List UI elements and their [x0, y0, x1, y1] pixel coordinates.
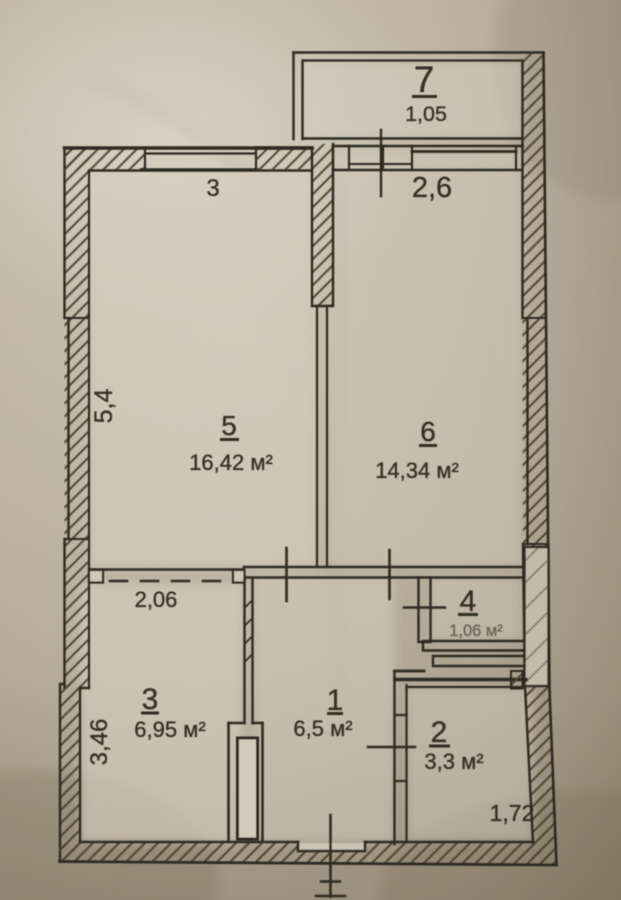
- svg-text:2,6: 2,6: [412, 172, 452, 204]
- svg-text:7: 7: [414, 59, 435, 100]
- svg-text:5,4: 5,4: [90, 389, 118, 424]
- svg-text:5: 5: [221, 410, 237, 441]
- svg-text:6,5 м²: 6,5 м²: [293, 716, 352, 741]
- svg-text:6,95 м²: 6,95 м²: [134, 717, 205, 742]
- svg-text:16,42 м²: 16,42 м²: [189, 450, 273, 475]
- svg-text:2,06: 2,06: [135, 587, 178, 612]
- svg-text:3: 3: [142, 683, 159, 716]
- svg-text:3,3 м²: 3,3 м²: [424, 749, 483, 774]
- svg-text:3: 3: [206, 175, 219, 202]
- svg-text:2: 2: [431, 716, 448, 749]
- svg-text:1,06 м²: 1,06 м²: [449, 622, 503, 640]
- svg-text:1,72: 1,72: [490, 800, 535, 826]
- svg-text:6: 6: [420, 416, 436, 447]
- svg-text:14,34 м²: 14,34 м²: [375, 458, 459, 483]
- svg-text:3,46: 3,46: [86, 719, 113, 766]
- svg-text:1,05: 1,05: [405, 102, 447, 126]
